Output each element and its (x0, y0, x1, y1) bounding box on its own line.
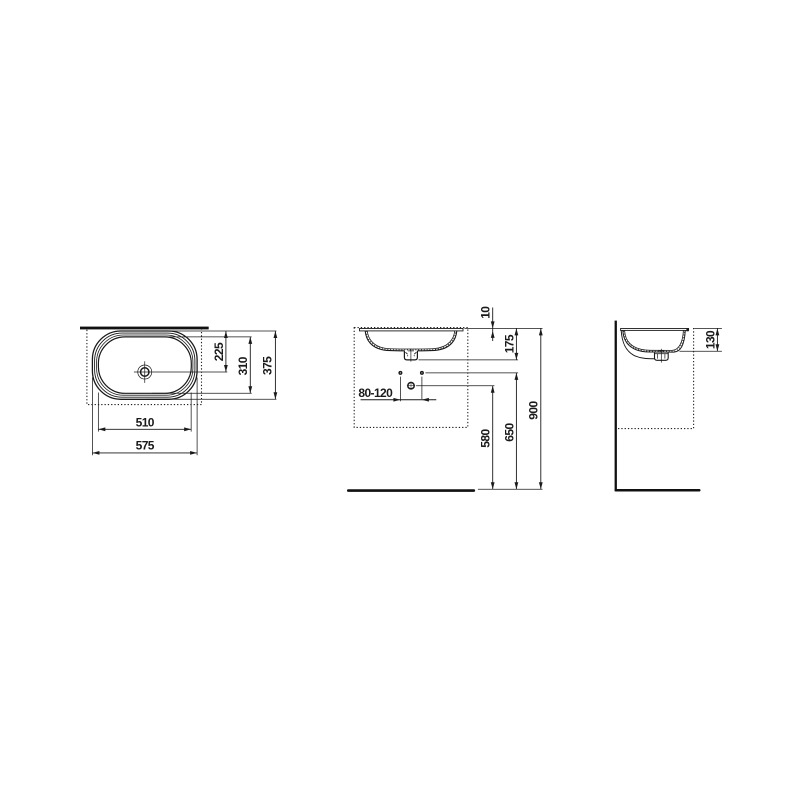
svg-text:580: 580 (479, 429, 493, 448)
svg-text:225: 225 (212, 342, 226, 361)
svg-text:650: 650 (503, 423, 517, 442)
svg-text:900: 900 (526, 401, 540, 420)
svg-text:130: 130 (704, 330, 718, 349)
svg-text:80-120: 80-120 (358, 386, 393, 400)
svg-text:175: 175 (502, 334, 516, 353)
svg-text:375: 375 (260, 356, 274, 375)
svg-text:10: 10 (479, 306, 493, 319)
svg-text:310: 310 (236, 356, 250, 375)
svg-text:575: 575 (136, 438, 155, 452)
svg-text:510: 510 (136, 415, 155, 429)
